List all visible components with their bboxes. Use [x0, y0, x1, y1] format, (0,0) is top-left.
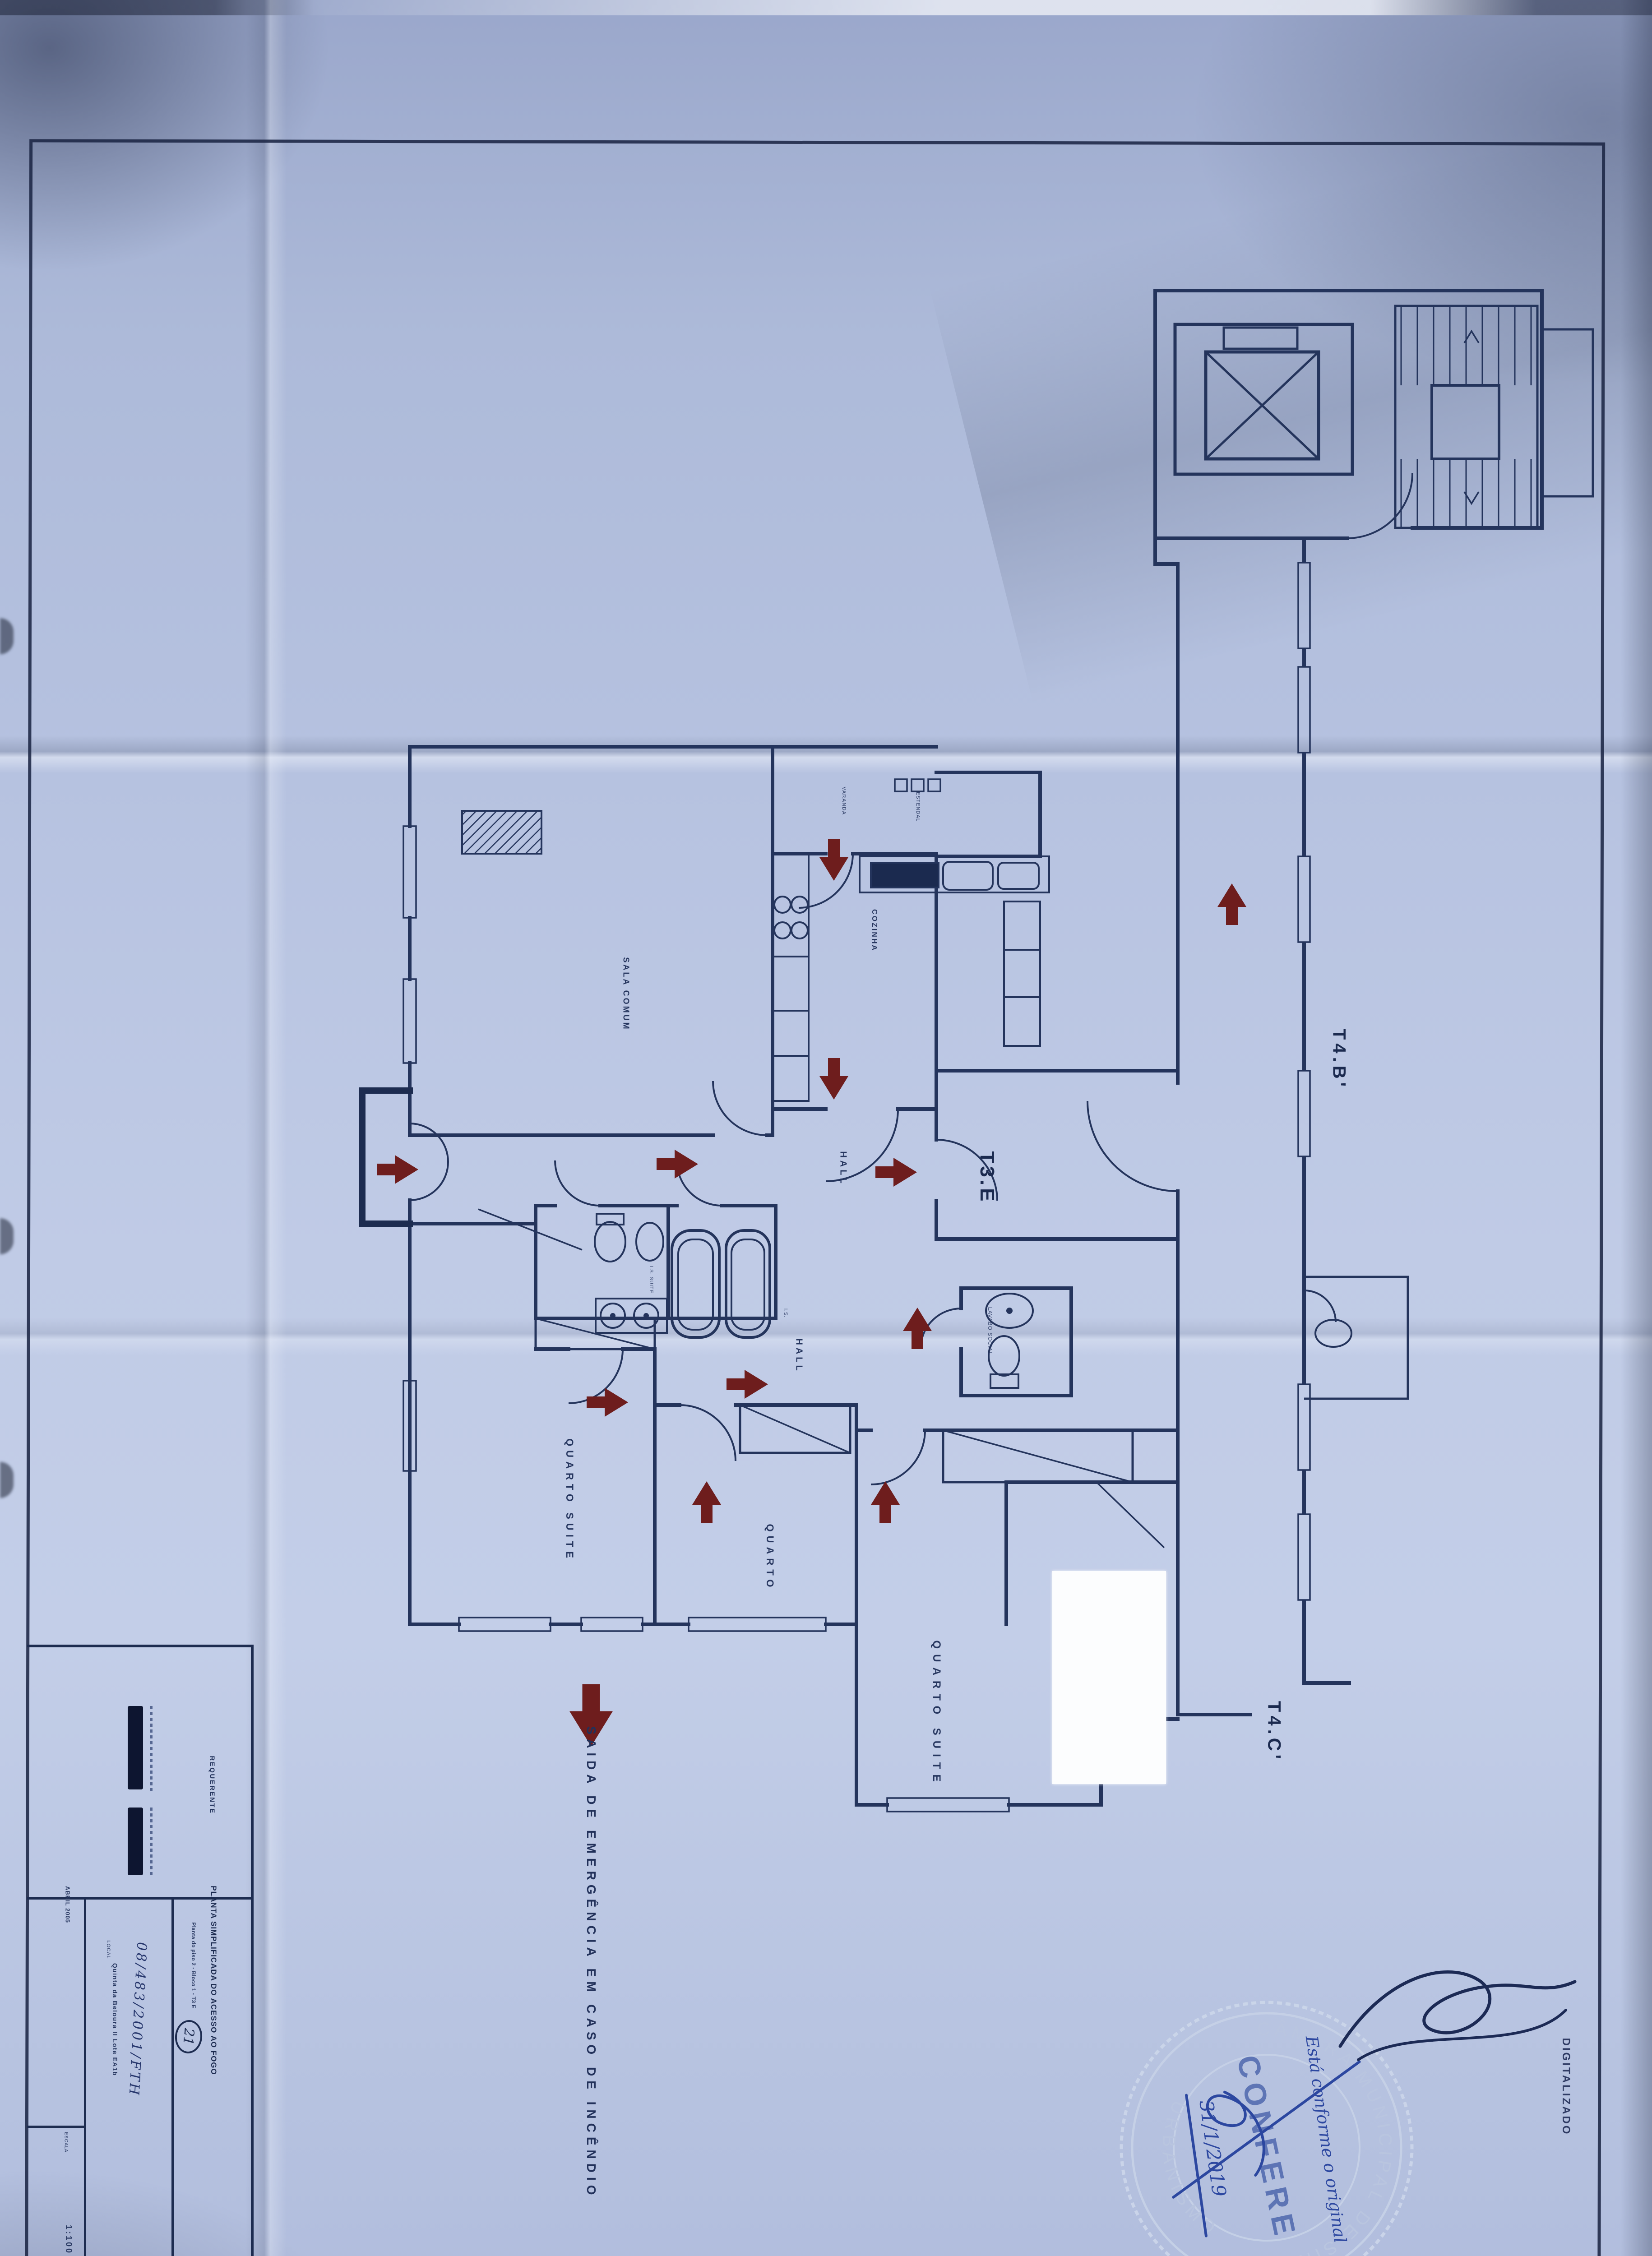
hatched-vent-grille [462, 811, 541, 854]
applicant-logo-mark [128, 1706, 143, 1789]
walls-secondary [536, 329, 1593, 1482]
walls-main [410, 291, 1542, 1805]
signature-scribble [1331, 1954, 1584, 2085]
applicant-logo-mark [128, 1808, 143, 1875]
title-block-divider-colB [171, 1900, 174, 2256]
title-block-divider-colA [84, 1900, 86, 2256]
title-block-divider-scale [27, 2126, 84, 2128]
scale-value: 1:100 [64, 2225, 74, 2255]
staircase [1395, 306, 1537, 528]
requerente-label: REQUERENTE [208, 1756, 216, 1814]
handwritten-circled-number: 21 [174, 2019, 204, 2055]
whiteout-patch [1052, 1571, 1166, 1784]
applicant-logo-smallprint [150, 1808, 153, 1877]
corridor-wall-windows [1298, 538, 1310, 1651]
drawing-subtitle: Planta do piso 2 - Bloco 1 - T3 E [190, 1923, 196, 2009]
handwritten-process-ref: 08/483/2001/FTH [126, 1942, 150, 2097]
room-label-bath-suite: I.S. SUITE [648, 1266, 654, 1294]
local-value: Quinta da Beloura II Lote EA1b [111, 1963, 119, 2076]
room-label-suite-left: QUARTO SUITE [564, 1438, 575, 1562]
applicant-logo-smallprint [150, 1706, 153, 1792]
elevator-shaft [1175, 324, 1352, 474]
title-block: REQUERENTE PLANTA SIMPLIFICADA DO ACESSO… [27, 1645, 254, 2256]
drawing-title: PLANTA SIMPLIFICADA DO ACESSO AO FOGO [209, 1886, 218, 2075]
local-label: LOCAL [106, 1940, 111, 1959]
room-label-wc-guest: LAVABO SOCIAL [987, 1307, 993, 1355]
circled-number-text: 21 [180, 2027, 197, 2046]
unit-label-t3e: T3.E [976, 1151, 998, 1204]
digitized-watermark: DIGITALIZADO [1559, 2038, 1572, 2136]
room-label-bedroom: QUARTO [764, 1524, 776, 1591]
room-label-living: SALA COMUM [621, 957, 631, 1031]
wardrobe-diagonals [478, 1209, 1164, 1548]
window-frames [403, 779, 1009, 1812]
corridor-label-t4b: T4.B' [1329, 1029, 1349, 1090]
kitchen-fixtures [773, 854, 1049, 1101]
entry-porch-walls [362, 1091, 410, 1224]
room-label-suite-bottom: QUARTO SUITE [930, 1641, 943, 1787]
room-label-balcony: VARANDA [841, 787, 847, 815]
room-label-hall-upper: HALL [838, 1151, 848, 1186]
room-label-bath: I.S. [783, 1308, 788, 1318]
emergency-exit-note: SAIDA DE EMERGÊNCIA EM CASO DE INCÊNDIO [584, 1726, 598, 2199]
scale-label: ESCALA [64, 2132, 69, 2152]
room-label-hall-lower: HALL [794, 1338, 804, 1373]
room-label-drying: ESTENDAL [915, 792, 921, 822]
corridor-label-t4c: T4.C' [1264, 1701, 1284, 1762]
scanned-floor-plan-photo: SALA COMUM COZINHA VARANDA ESTENDAL HALL… [0, 0, 1652, 2256]
stamp-date-text: 31/1/2019 [1195, 2099, 1230, 2198]
door-arcs [410, 473, 1412, 1484]
room-label-kitchen: COZINHA [870, 909, 878, 952]
date-value: ABRIL 2005 [65, 1886, 71, 1923]
